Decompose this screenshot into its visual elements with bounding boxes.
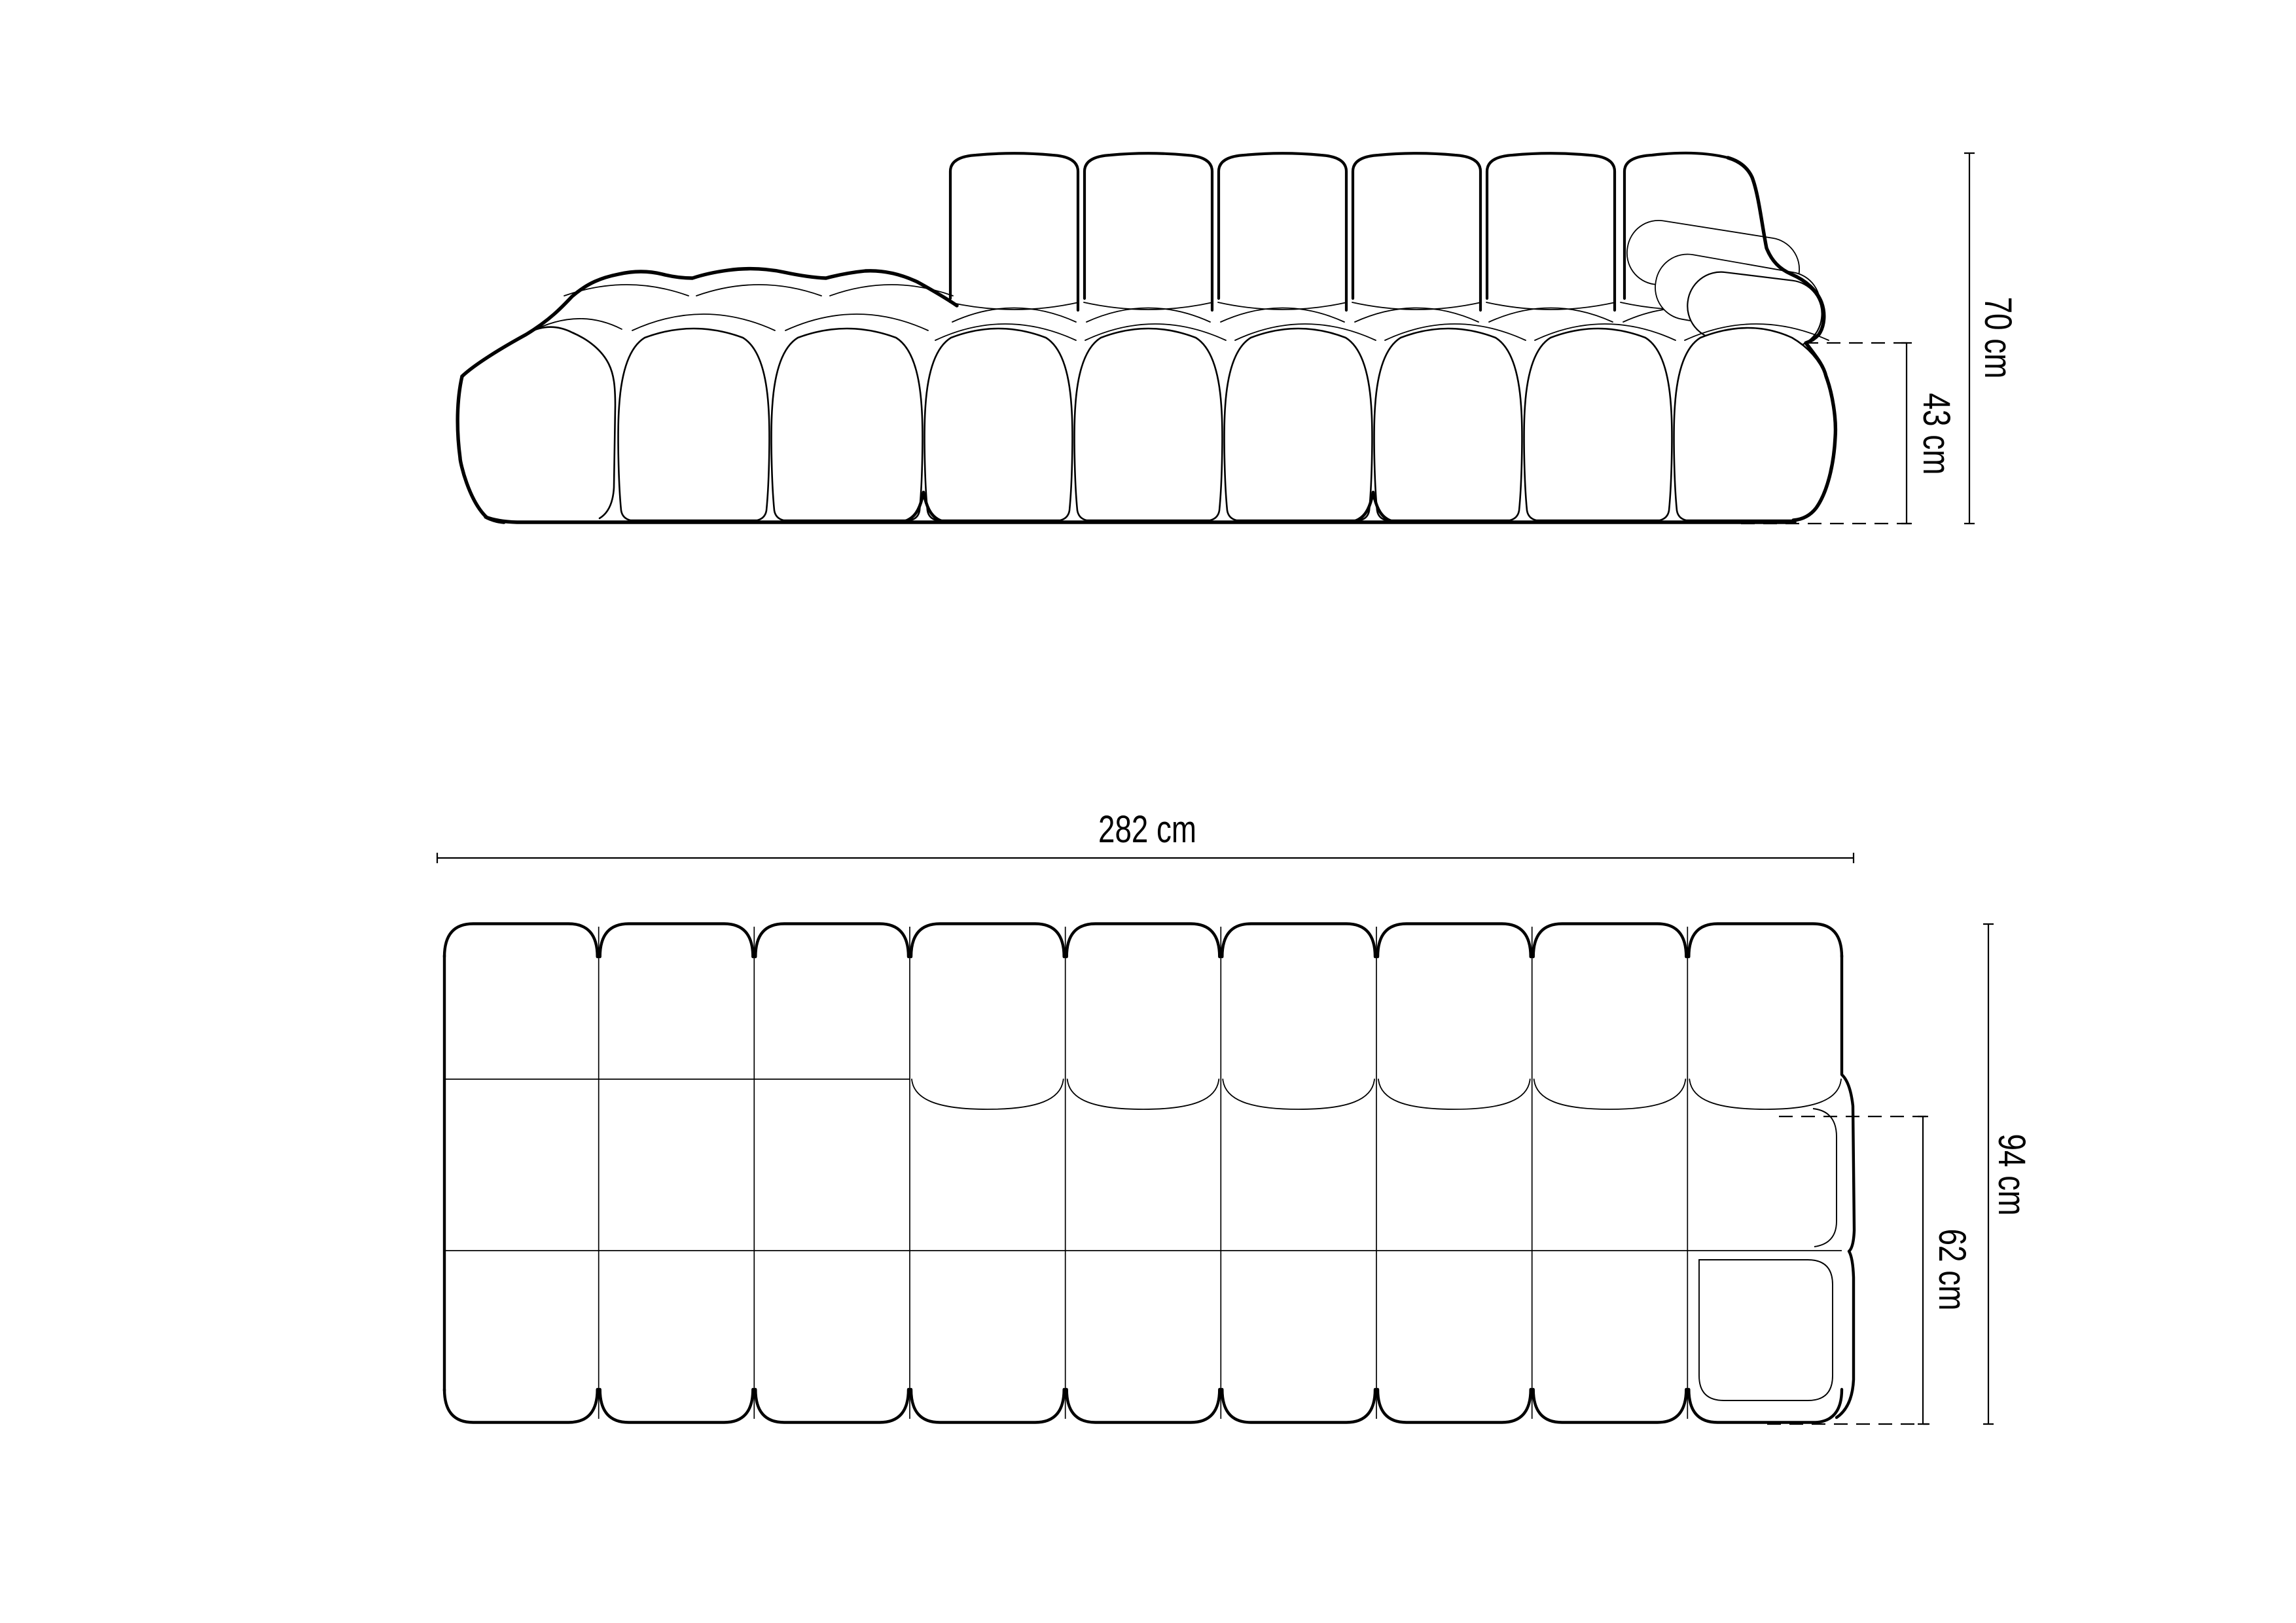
svg-text:70 cm: 70 cm xyxy=(1977,297,2019,379)
svg-text:62 cm: 62 cm xyxy=(1931,1229,1973,1311)
svg-text:94 cm: 94 cm xyxy=(1990,1134,2033,1216)
svg-text:43 cm: 43 cm xyxy=(1915,393,1958,475)
svg-text:282 cm: 282 cm xyxy=(1098,808,1196,851)
